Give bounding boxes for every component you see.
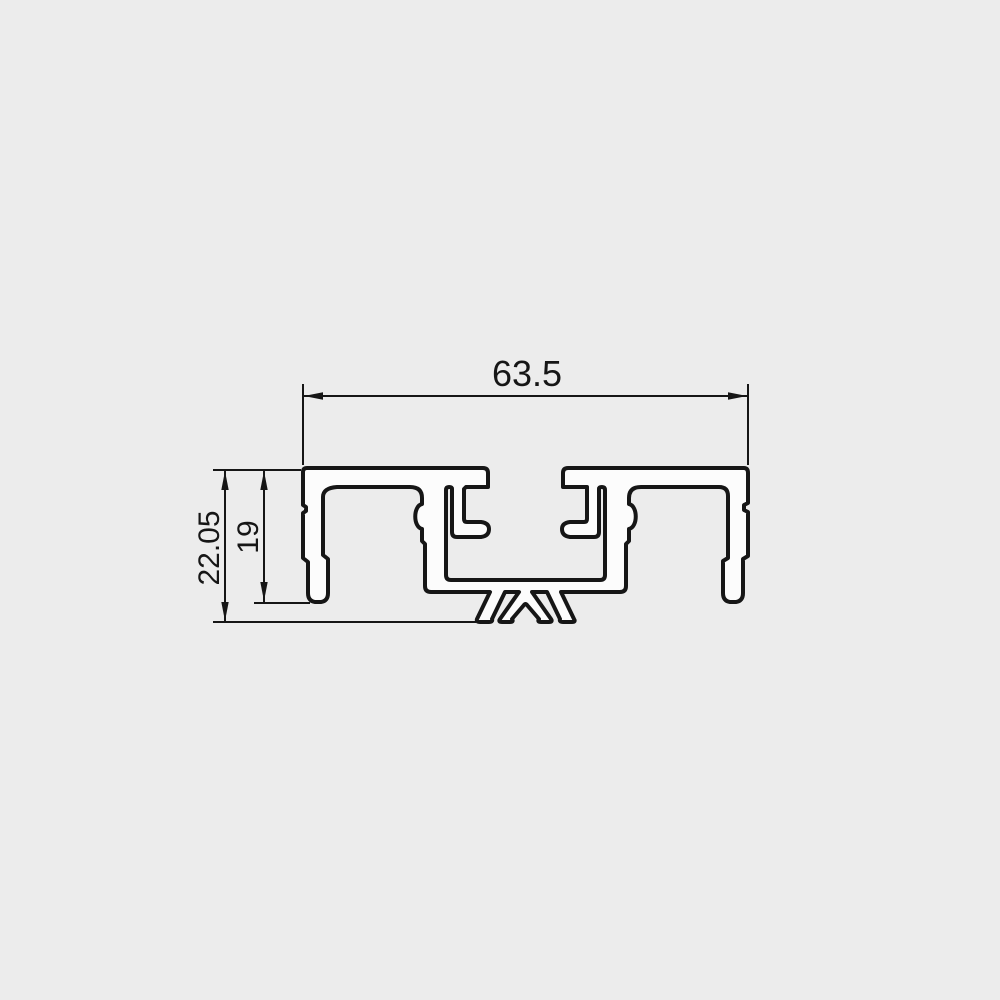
drawing-canvas: 63.5 22.05 19 — [0, 0, 1000, 1000]
arrow-left — [304, 392, 323, 399]
arrow-right — [728, 392, 747, 399]
dimension-label-overall-height: 22.05 — [193, 510, 226, 585]
dimension-label-inner-height: 19 — [232, 520, 265, 553]
arrow-top — [221, 471, 228, 490]
technical-drawing: 63.5 22.05 19 — [0, 0, 1000, 1000]
dimension-inner-height: 19 — [232, 470, 310, 603]
profile-cross-section — [303, 468, 748, 622]
arrow-inner-top — [260, 471, 267, 490]
dimension-width: 63.5 — [303, 353, 748, 465]
dimension-label-width: 63.5 — [492, 353, 562, 394]
arrow-bottom — [221, 602, 228, 621]
arrow-inner-bottom — [260, 582, 267, 601]
